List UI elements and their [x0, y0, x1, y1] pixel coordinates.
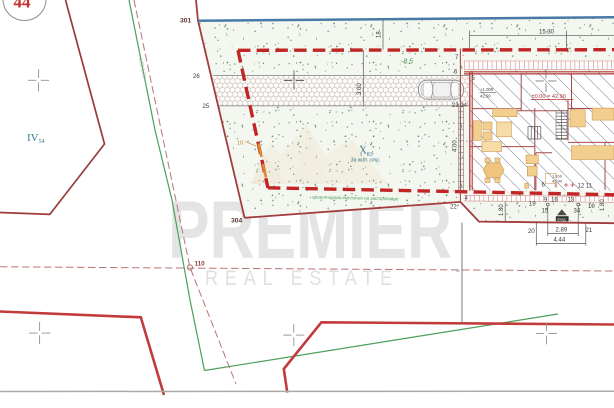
svg-text:4.44: 4.44 [554, 238, 566, 244]
svg-text:1.80: 1.80 [499, 204, 505, 216]
svg-text:10: 10 [588, 204, 595, 210]
svg-text:15: 15 [542, 209, 549, 215]
svg-text:21: 21 [586, 228, 593, 234]
svg-text:1.80: 1.80 [600, 199, 606, 211]
svg-text:13: 13 [568, 198, 575, 204]
svg-text:23 24: 23 24 [452, 103, 468, 109]
svg-text:19: 19 [529, 202, 536, 208]
svg-text:К: К [555, 184, 558, 190]
svg-text:12 11: 12 11 [578, 184, 593, 190]
svg-text:16: 16 [551, 198, 558, 204]
svg-text:110: 110 [195, 261, 206, 268]
svg-text:±0.00 = 42.90: ±0.00 = 42.90 [532, 94, 566, 100]
svg-text:2.89: 2.89 [556, 228, 568, 234]
svg-text:301: 301 [180, 18, 192, 25]
svg-text:25: 25 [203, 104, 210, 110]
svg-text:-8.5: -8.5 [401, 59, 413, 66]
svg-text:26: 26 [193, 74, 200, 80]
svg-text:44: 44 [14, 0, 32, 12]
svg-text:+1.000: +1.000 [480, 87, 494, 92]
svg-text:18: 18 [377, 31, 383, 38]
svg-text:За жил. стр.: За жил. стр. [351, 158, 381, 164]
svg-text:3.00: 3.00 [357, 83, 363, 95]
svg-text:4.00: 4.00 [453, 140, 459, 152]
svg-text:42.90: 42.90 [480, 94, 491, 99]
svg-text:304: 304 [231, 218, 243, 225]
svg-text:15.30: 15.30 [539, 30, 555, 36]
svg-text:10: 10 [237, 141, 243, 147]
svg-text:20: 20 [528, 229, 535, 235]
svg-text:REAL ESTATE: REAL ESTATE [205, 267, 399, 290]
svg-text:34: 34 [574, 209, 581, 215]
svg-text:42.90: 42.90 [552, 179, 563, 184]
svg-text:вход: вход [557, 216, 566, 221]
